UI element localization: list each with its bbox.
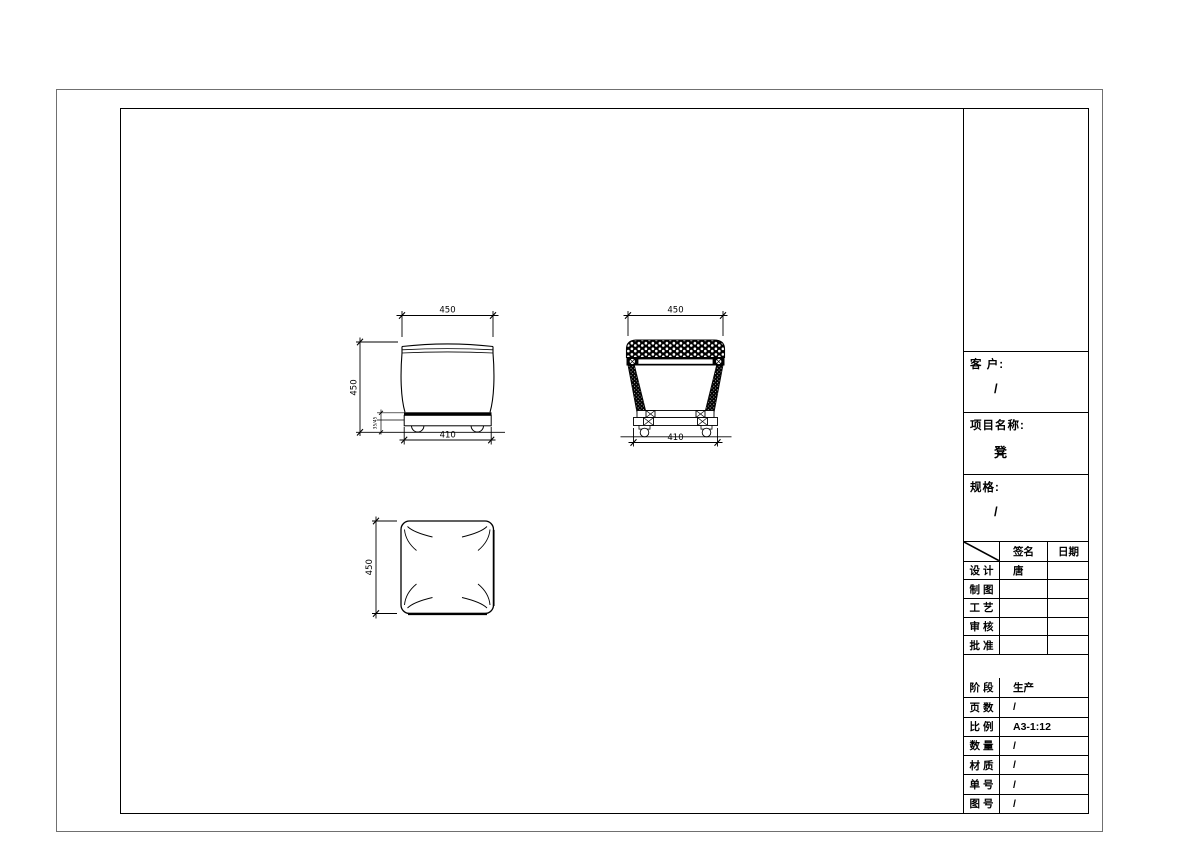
dimension-label: 410 xyxy=(667,433,683,443)
signature-header: 签名 xyxy=(1000,542,1048,561)
front-bottom-dimension: 410 xyxy=(400,427,496,445)
spec-section: 规格: / xyxy=(964,475,1089,542)
signature-table: 签名 日期 设 计 唐 制 图 工 艺 审 核 批 准 xyxy=(964,542,1089,655)
caster-side-left xyxy=(640,428,649,437)
customer-label: 客 户: xyxy=(970,356,1083,372)
review-row-label: 审 核 xyxy=(964,617,1000,636)
design-row-label: 设 计 xyxy=(964,561,1000,580)
approval-signature xyxy=(1000,635,1048,654)
scale-label: 比 例 xyxy=(964,717,1000,736)
dimension-label: 450 xyxy=(365,559,375,575)
project-name-value: 凳 xyxy=(994,442,1083,461)
title-block-empty-cell xyxy=(964,108,1089,352)
spec-value: / xyxy=(994,504,1083,519)
drawing-number-label: 图 号 xyxy=(964,794,1000,813)
dimension-label: 410 xyxy=(440,430,456,440)
design-date xyxy=(1048,561,1089,580)
stool-front-outline xyxy=(401,344,494,432)
dimension-label: 450 xyxy=(350,379,360,395)
top-depth-dimension: 450 xyxy=(365,517,397,619)
approval-row-label: 批 准 xyxy=(964,635,1000,654)
title-block: 客 户: / 项目名称: 凳 规格: / 签名 日期 设 计 唐 制 图 工 艺… xyxy=(963,108,1089,814)
caster-side-right xyxy=(702,428,711,437)
date-header: 日期 xyxy=(1048,542,1089,561)
pages-value: / xyxy=(1000,697,1089,716)
order-number-value: / xyxy=(1000,774,1089,793)
title-block-gap xyxy=(964,655,1089,678)
spec-label: 规格: xyxy=(970,479,1083,495)
stage-value: 生产 xyxy=(1000,678,1089,697)
stage-label: 阶 段 xyxy=(964,678,1000,697)
dimension-label: 35/45 xyxy=(373,416,379,429)
review-signature xyxy=(1000,617,1048,636)
cad-sheet: { "title_block": { "customer": {"label":… xyxy=(0,0,1191,842)
front-view: 450 450 35/45 xyxy=(350,306,506,445)
quantity-value: / xyxy=(1000,736,1089,755)
material-label: 材 质 xyxy=(964,755,1000,774)
project-name-section: 项目名称: 凳 xyxy=(964,413,1089,475)
customer-section: 客 户: / xyxy=(964,352,1089,413)
side-top-dimension: 450 xyxy=(624,306,728,337)
review-date xyxy=(1048,617,1089,636)
scale-value: A3-1:12 xyxy=(1000,717,1089,736)
seat-rail-section xyxy=(627,358,725,366)
pages-label: 页 数 xyxy=(964,697,1000,716)
bottom-rails xyxy=(634,411,718,426)
customer-value: / xyxy=(994,381,1083,396)
seat-top-outline xyxy=(401,521,494,614)
process-row-label: 工 艺 xyxy=(964,598,1000,617)
front-top-dimension: 450 xyxy=(397,306,499,338)
design-signature: 唐 xyxy=(1000,561,1048,580)
drawing-number-value: / xyxy=(1000,794,1089,813)
dimension-label: 450 xyxy=(667,306,683,316)
info-table: 阶 段 生产 页 数 / 比 例 A3-1:12 数 量 / 材 质 / 单 号… xyxy=(964,678,1089,814)
caster-front-left xyxy=(412,426,424,432)
top-view: 450 xyxy=(365,517,494,619)
dimension-label: 450 xyxy=(439,306,455,316)
cushion-section xyxy=(627,340,725,358)
material-value: / xyxy=(1000,755,1089,774)
quantity-label: 数 量 xyxy=(964,736,1000,755)
caster-front-right xyxy=(471,426,483,432)
process-date xyxy=(1048,598,1089,617)
drafting-row-label: 制 图 xyxy=(964,579,1000,598)
diagonal-line xyxy=(964,542,999,561)
drafting-signature xyxy=(1000,579,1048,598)
drafting-date xyxy=(1048,579,1089,598)
order-number-label: 单 号 xyxy=(964,774,1000,793)
side-section-view: 450 xyxy=(621,306,732,447)
process-signature xyxy=(1000,598,1048,617)
front-base-dimension: 35/45 xyxy=(373,410,405,435)
approval-date xyxy=(1048,635,1089,654)
project-name-label: 项目名称: xyxy=(970,417,1083,433)
signature-table-diagonal-cell xyxy=(964,542,1000,561)
